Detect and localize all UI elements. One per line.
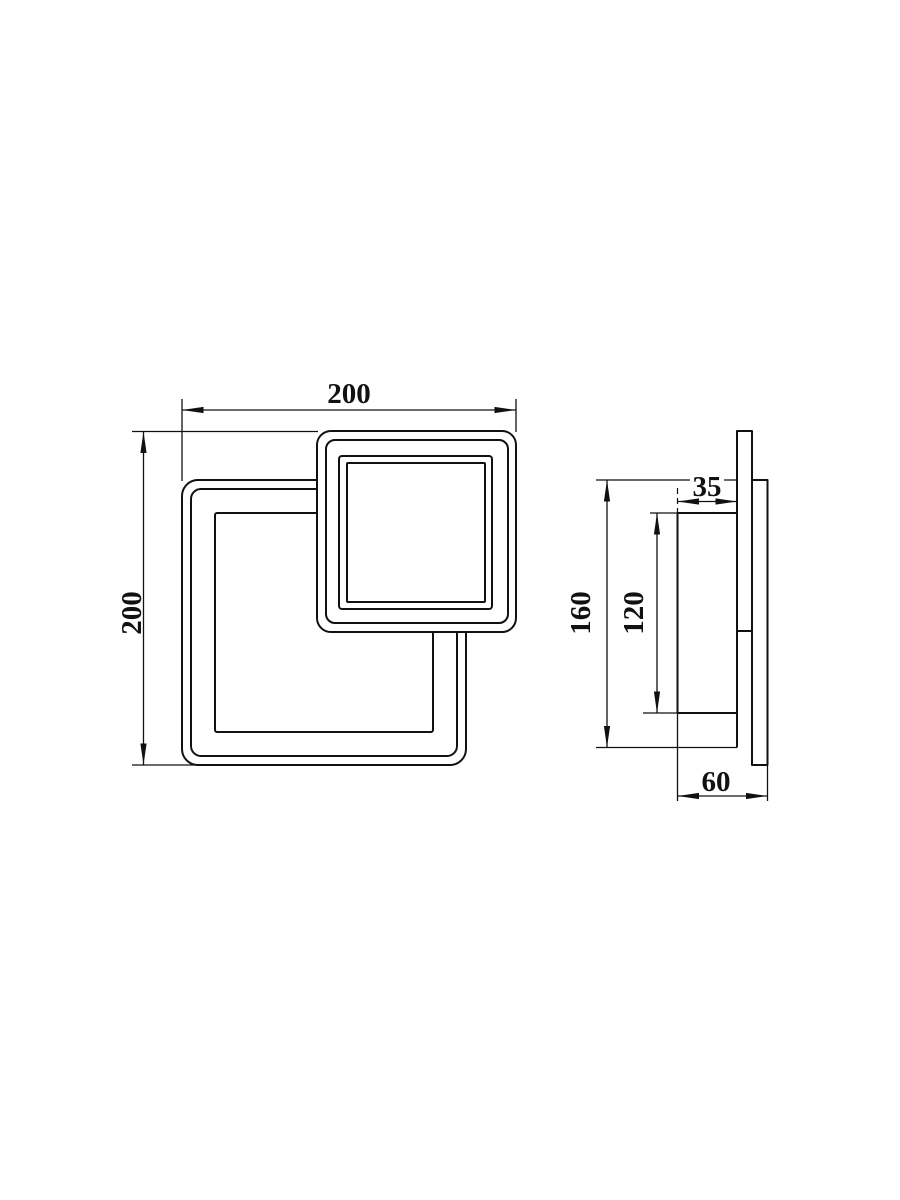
side-panel-height-dimension: 120 (618, 513, 678, 713)
front-height-dimension: 200 (116, 432, 318, 766)
front-view (182, 431, 516, 765)
front-width-label: 200 (327, 378, 371, 410)
side-panel-depth-dimension: 35 (678, 471, 738, 513)
technical-drawing: 200 200 160 (0, 0, 900, 1200)
front-height-label: 200 (116, 591, 148, 635)
side-panel-height-label: 120 (618, 591, 650, 635)
drawing-canvas: 200 200 160 (0, 0, 900, 1200)
side-mount-height-label: 160 (565, 591, 597, 635)
side-mount-height-dimension: 160 (565, 480, 737, 748)
side-total-depth-label: 60 (702, 766, 731, 798)
side-small-frame-profile (737, 431, 752, 631)
side-panel-depth-label: 35 (693, 471, 722, 503)
side-lamp-body (678, 513, 738, 713)
side-total-depth-dimension: 60 (678, 713, 768, 801)
side-rear-plate (752, 480, 768, 765)
